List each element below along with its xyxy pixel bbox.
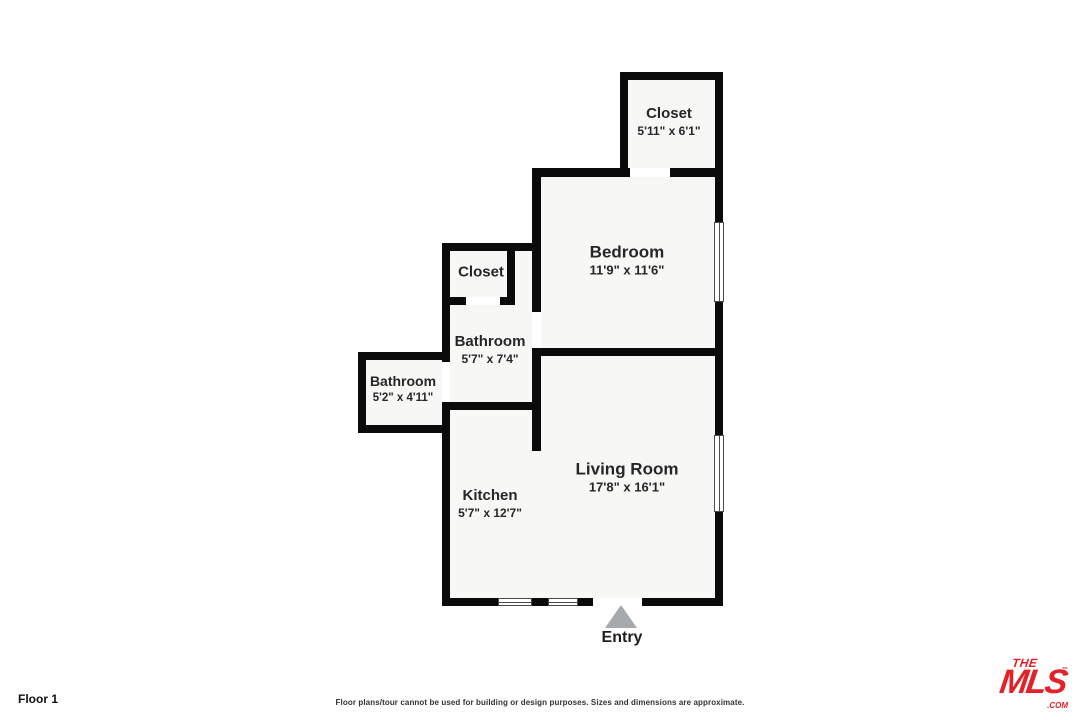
- logo-tm-mark: ™: [1062, 667, 1068, 673]
- themls-logo: THE MLS ™ .COM: [1000, 656, 1068, 712]
- room-dims: 5'11" x 6'1": [637, 124, 700, 139]
- room-dims: 11'9" x 11'6": [590, 263, 665, 279]
- wall-bathroom-bottom: [442, 402, 540, 410]
- room-name: Living Room: [576, 458, 679, 479]
- entry-arrow-icon: [605, 605, 637, 628]
- room-dims: 5'7" x 7'4": [455, 352, 526, 367]
- window-bottom-2: [548, 598, 578, 606]
- disclaimer-text: Floor plans/tour cannot be used for buil…: [0, 698, 1080, 707]
- label-bathroom-mid: Bathroom 5'7" x 7'4": [455, 333, 526, 367]
- wall-bathroomleft-top: [358, 352, 450, 360]
- label-bathroom-left: Bathroom 5'2" x 4'11": [370, 373, 436, 405]
- floor-plan: Closet 5'11" x 6'1" Bedroom 11'9" x 11'6…: [358, 72, 723, 612]
- door-midcloset: [466, 297, 500, 305]
- wall-bathroomleft-left: [358, 352, 366, 433]
- door-closet-top: [630, 168, 670, 177]
- door-bathroom-left: [442, 362, 450, 402]
- logo-mls-text: MLS: [998, 665, 1069, 699]
- door-bathroom-bedroom: [532, 312, 541, 348]
- window-living-right: [714, 435, 724, 512]
- wall-closet-right: [715, 72, 723, 177]
- room-dims: 5'7" x 12'7": [458, 506, 522, 521]
- label-closet-mid: Closet: [458, 264, 504, 283]
- window-bottom-1: [498, 598, 532, 606]
- wall-bathroomleft-bottom: [358, 425, 450, 433]
- room-dims: 17'8" x 16'1": [576, 480, 679, 496]
- wall-bedroom-top: [533, 168, 723, 177]
- wall-midcloset-top: [442, 243, 541, 251]
- room-dims: 5'2" x 4'11": [370, 391, 436, 405]
- wall-closet-top: [620, 72, 723, 80]
- wall-plan-bottom: [442, 598, 723, 606]
- label-closet-top: Closet 5'11" x 6'1": [637, 105, 700, 139]
- wall-closet-left: [620, 72, 628, 177]
- logo-com-text: .COM: [1047, 701, 1068, 710]
- wall-midcloset-right: [507, 243, 515, 305]
- window-bedroom-right: [714, 222, 724, 302]
- entry-label: Entry: [602, 629, 643, 647]
- room-name: Bathroom: [455, 333, 526, 352]
- room-name: Bedroom: [590, 241, 665, 262]
- room-name: Bathroom: [370, 373, 436, 391]
- room-name: Kitchen: [458, 487, 522, 506]
- label-bedroom: Bedroom 11'9" x 11'6": [590, 241, 665, 279]
- room-name: Closet: [637, 105, 700, 124]
- label-living-room: Living Room 17'8" x 16'1": [576, 458, 679, 496]
- room-name: Closet: [458, 264, 504, 283]
- label-kitchen: Kitchen 5'7" x 12'7": [458, 487, 522, 521]
- wall-bedroom-bottom: [532, 348, 723, 356]
